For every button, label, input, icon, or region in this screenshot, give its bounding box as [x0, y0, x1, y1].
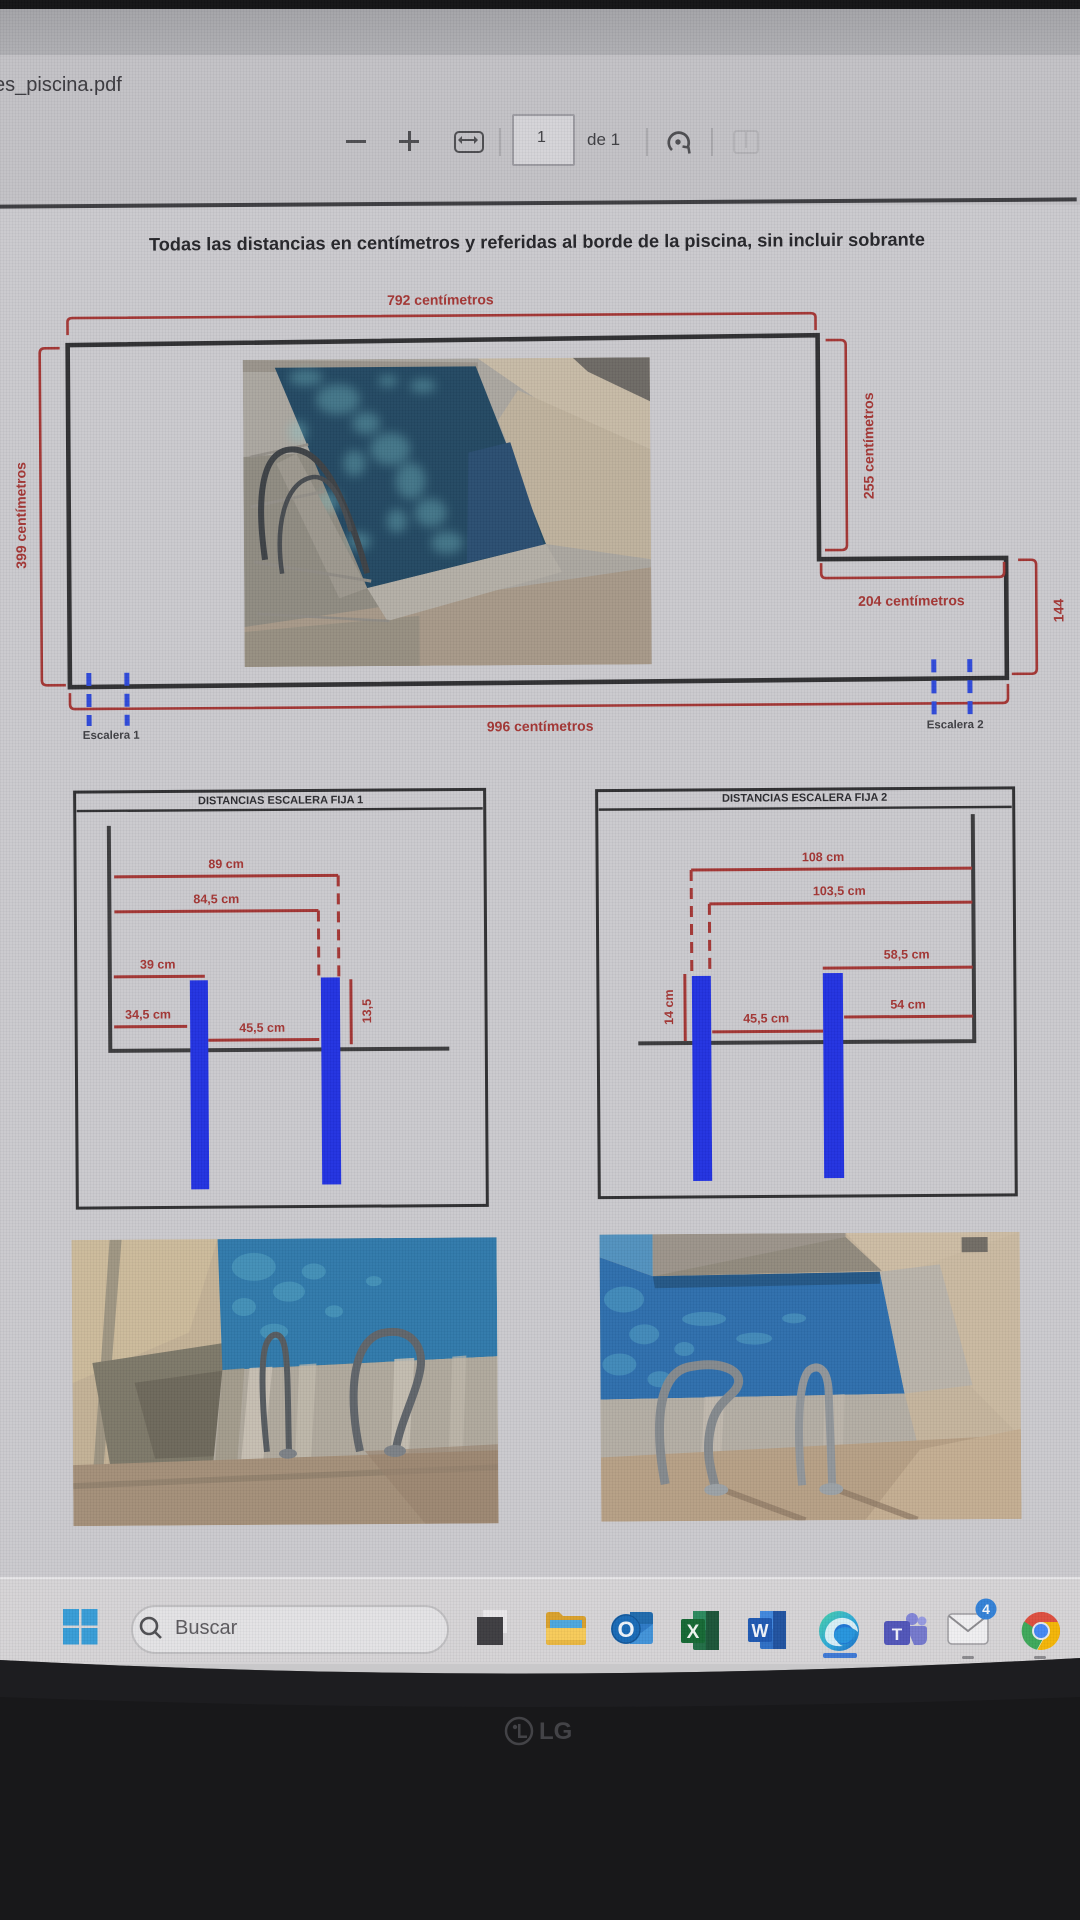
svg-text:54 cm: 54 cm: [890, 997, 926, 1011]
svg-text:255 centímetros: 255 centímetros: [860, 392, 877, 499]
svg-text:Escalera 2: Escalera 2: [927, 719, 984, 731]
svg-text:LG: LG: [539, 1718, 572, 1745]
svg-text:4: 4: [982, 1601, 990, 1617]
svg-text:O: O: [617, 1617, 634, 1642]
svg-text:996 centímetros: 996 centímetros: [487, 718, 594, 735]
svg-text:DISTANCIAS ESCALERA FIJA 2: DISTANCIAS ESCALERA FIJA 2: [722, 792, 887, 805]
svg-text:108 cm: 108 cm: [802, 850, 844, 864]
svg-text:204 centímetros: 204 centímetros: [858, 592, 965, 609]
svg-text:34,5 cm: 34,5 cm: [125, 1007, 171, 1021]
svg-text:45,5 cm: 45,5 cm: [239, 1021, 285, 1035]
svg-text:144: 144: [1050, 599, 1066, 623]
svg-text:Todas las distancias en centím: Todas las distancias en centímetros y re…: [149, 229, 925, 254]
svg-text:W: W: [752, 1621, 769, 1641]
svg-text:89 cm: 89 cm: [208, 857, 244, 871]
svg-text:T: T: [892, 1625, 903, 1644]
svg-text:DISTANCIAS ESCALERA FIJA 1: DISTANCIAS ESCALERA FIJA 1: [198, 794, 363, 807]
svg-text:Escalera 1: Escalera 1: [83, 730, 141, 742]
svg-text:84,5 cm: 84,5 cm: [193, 892, 239, 906]
svg-text:103,5 cm: 103,5 cm: [813, 884, 866, 898]
svg-text:14 cm: 14 cm: [662, 989, 676, 1025]
svg-text:792 centímetros: 792 centímetros: [387, 291, 494, 308]
svg-text:13,5: 13,5: [360, 999, 374, 1023]
svg-text:39 cm: 39 cm: [140, 957, 176, 971]
svg-text:X: X: [687, 1622, 700, 1643]
svg-text:45,5 cm: 45,5 cm: [743, 1011, 789, 1025]
svg-text:58,5 cm: 58,5 cm: [884, 947, 930, 961]
svg-text:399 centímetros: 399 centímetros: [12, 462, 29, 569]
